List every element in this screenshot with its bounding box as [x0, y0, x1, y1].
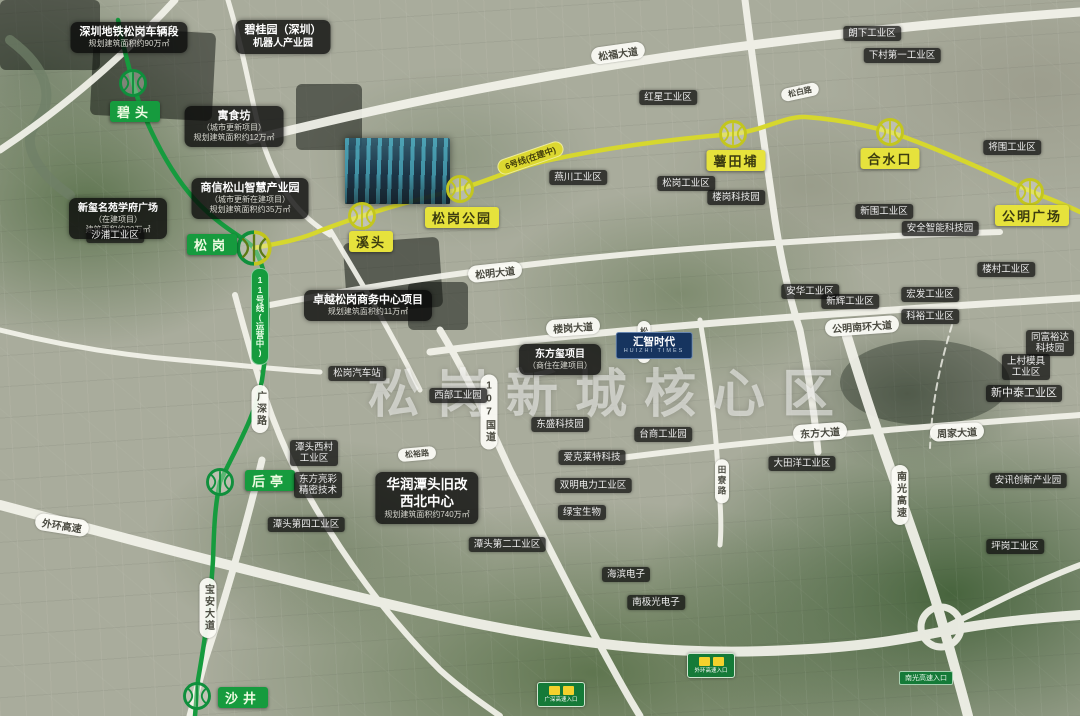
area-label: 朗下工业区 — [843, 26, 901, 41]
area-label: 楼岗科技园 — [707, 190, 765, 205]
area-label: 潭头第二工业区 — [469, 537, 546, 552]
metro-station-icon-heshuikou — [875, 117, 905, 147]
area-label: 松岗汽车站 — [328, 366, 386, 381]
road-path-nanguang — [845, 330, 968, 716]
area-label: 新围工业区 — [855, 204, 913, 219]
project-box-huarun-tantou: 华润潭头旧改 西北中心 规划建筑面积约740万㎡ — [375, 472, 478, 524]
road-label-guangshen: 广深路 — [252, 385, 269, 433]
area-label: 坪岗工业区 — [986, 539, 1044, 554]
area-label: 东盛科技园 — [531, 417, 589, 432]
road-label-zhoujia: 周家大道 — [930, 422, 985, 442]
area-label: 绿宝生物 — [558, 505, 606, 520]
road-label-g107: 107国道 — [481, 375, 498, 450]
station-label-shajing: 沙井 — [218, 687, 268, 708]
area-label: 新中泰工业区 — [986, 385, 1062, 402]
area-label: 新辉工业区 — [821, 294, 879, 309]
road-label-baoan: 宝安大道 — [200, 578, 217, 638]
station-label-shutianpu: 薯田埔 — [706, 150, 765, 171]
area-label: 宏发工业区 — [901, 287, 959, 302]
area-label: 安全智能科技园 — [902, 221, 979, 236]
project-box-depot: 深圳地铁松岗车辆段 规划建筑面积约90万㎡ — [71, 22, 188, 53]
project-box-bgy-robot: 碧桂园（深圳） 机器人产业园 — [236, 20, 331, 54]
station-label-heshuikou: 合水口 — [860, 148, 919, 169]
station-label-xitou: 溪头 — [349, 231, 393, 252]
area-label: 将围工业区 — [983, 140, 1041, 155]
area-label: 东方亮彩精密技术 — [294, 472, 342, 498]
area-label: 双明电力工业区 — [555, 478, 632, 493]
area-label: 安讯创新产业园 — [990, 473, 1067, 488]
area-label: 松岗工业区 — [657, 176, 715, 191]
metro-interchange-icon-songgang — [235, 229, 273, 267]
project-box-yushifang: 寓食坊 （城市更新项目） 规划建筑面积约12万㎡ — [185, 106, 284, 147]
area-label: 海滨电子 — [602, 567, 650, 582]
area-label: 同富裕达科技园 — [1026, 330, 1074, 356]
station-label-gongming-square: 公明广场 — [995, 205, 1069, 226]
highway-entrance-sign: 外环高速入口 — [687, 653, 735, 678]
highway-shield-icon — [690, 657, 732, 666]
project-box-dongfangxi: 东方玺项目 （商住在建项目） — [519, 344, 601, 375]
area-label: 台商工业园 — [634, 427, 692, 442]
road-path-songfu — [250, 12, 1080, 140]
project-box-songshan-park: 商信松山智慧产业园 （城市更新在建项目） 规划建筑面积约35万㎡ — [192, 178, 309, 219]
metro-station-icon-gongming-square — [1015, 177, 1045, 207]
area-label: 沙浦工业区 — [86, 228, 144, 243]
road-path — [0, 330, 320, 372]
development-render-inset — [345, 138, 450, 204]
area-label: 潭头第四工业区 — [268, 517, 345, 532]
area-label: 下村第一工业区 — [864, 48, 941, 63]
metro-station-icon-bitou — [118, 68, 148, 98]
metro-station-icon-shutianpu — [718, 119, 748, 149]
road-label-nanguang: 南光高速 — [892, 465, 909, 525]
station-label-songgang: 松岗 — [187, 234, 237, 255]
station-label-bitou: 碧头 — [110, 101, 160, 122]
metro-station-icon-houting — [205, 467, 235, 497]
highway-entrance-sign: 南光高速入口 — [899, 671, 953, 685]
project-box-zhuoyue: 卓越松岗商务中心项目 规划建筑面积约11万㎡ — [304, 290, 432, 321]
line11-tag: 11号线(运营中) — [251, 268, 269, 365]
area-label: 上村模具工业区 — [1002, 354, 1050, 380]
metro-station-icon-xitou — [347, 201, 377, 231]
area-label: 西部工业园 — [429, 388, 487, 403]
station-label-songgang-park: 松岗公园 — [425, 207, 499, 228]
highway-shield-icon — [540, 686, 582, 695]
station-label-houting: 后亭 — [245, 470, 295, 491]
map-canvas: 松岗新城核心区 碧头 松岗 溪头 松岗公园 薯田埔 合水口 公明广场 后亭 沙井… — [0, 0, 1080, 716]
metro-station-icon-songgang-park — [445, 174, 475, 204]
metro-station-icon-shajing — [182, 681, 212, 711]
area-label: 潭头西村工业区 — [290, 440, 338, 466]
highway-entrance-sign: 广深高速入口 — [537, 682, 585, 707]
area-label: 大田洋工业区 — [768, 456, 835, 471]
area-label: 科裕工业区 — [901, 309, 959, 324]
landmark-huizhi-times: 汇智时代 HUIZHI TIMES — [616, 332, 693, 359]
road-label-tianliao: 田寮路 — [715, 459, 729, 503]
area-label: 爱克莱特科技 — [558, 450, 625, 465]
area-label: 楼村工业区 — [977, 262, 1035, 277]
area-label: 南极光电子 — [627, 595, 685, 610]
area-label: 红星工业区 — [639, 90, 697, 105]
area-label: 燕川工业区 — [549, 170, 607, 185]
